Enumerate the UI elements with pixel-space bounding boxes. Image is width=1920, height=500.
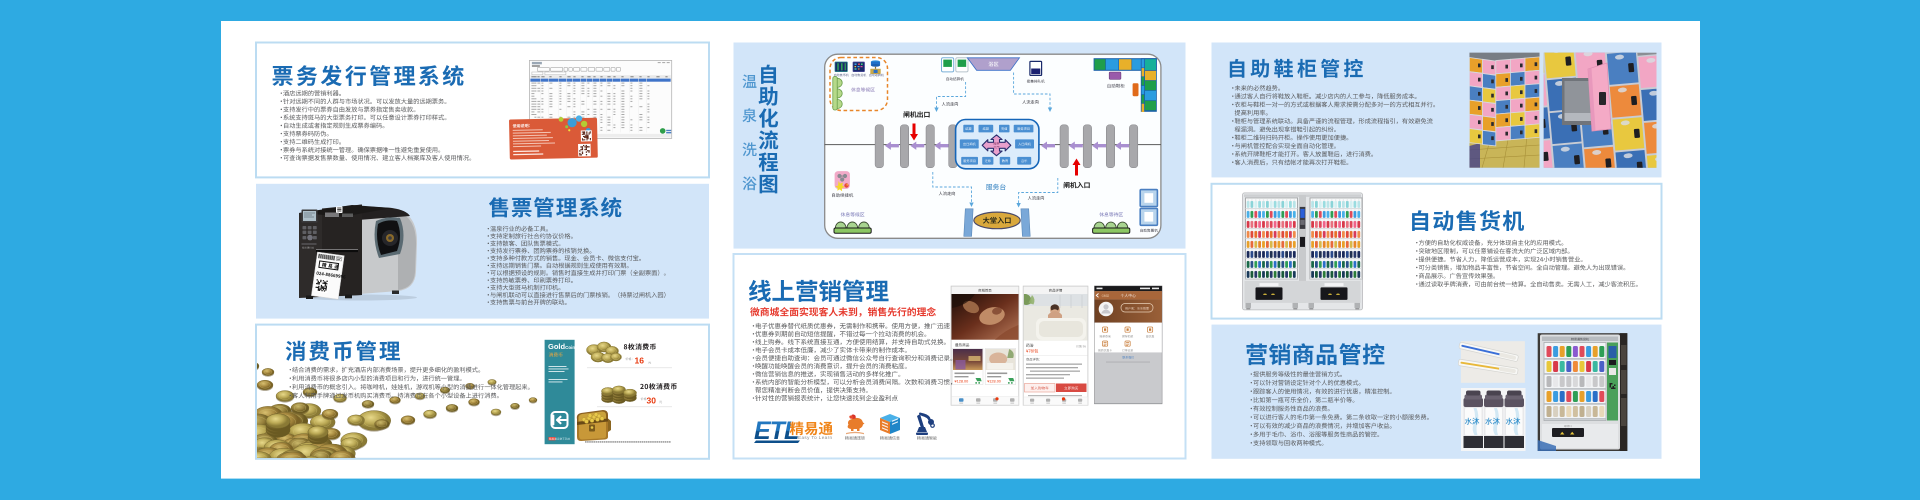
svg-text:16: 16 bbox=[635, 356, 645, 366]
svg-text:¥78/包: ¥78/包 bbox=[1026, 348, 1039, 354]
svg-text:¥128.00: ¥128.00 bbox=[987, 380, 1001, 384]
svg-text:¥128.00: ¥128.00 bbox=[955, 380, 969, 384]
svg-text:Easy To Learn: Easy To Learn bbox=[798, 435, 833, 440]
svg-text:30: 30 bbox=[647, 395, 657, 405]
